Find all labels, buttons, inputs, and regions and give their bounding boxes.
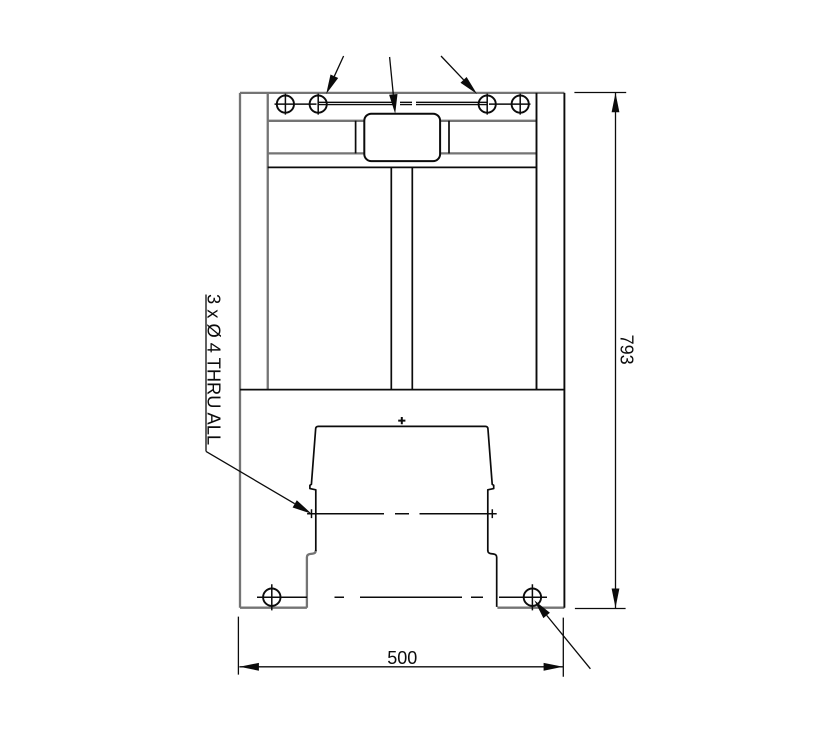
svg-text:3 x Ø 4 THRU ALL: 3 x Ø 4 THRU ALL [204,294,225,445]
svg-text:500: 500 [387,648,417,668]
svg-text:793: 793 [616,335,636,365]
